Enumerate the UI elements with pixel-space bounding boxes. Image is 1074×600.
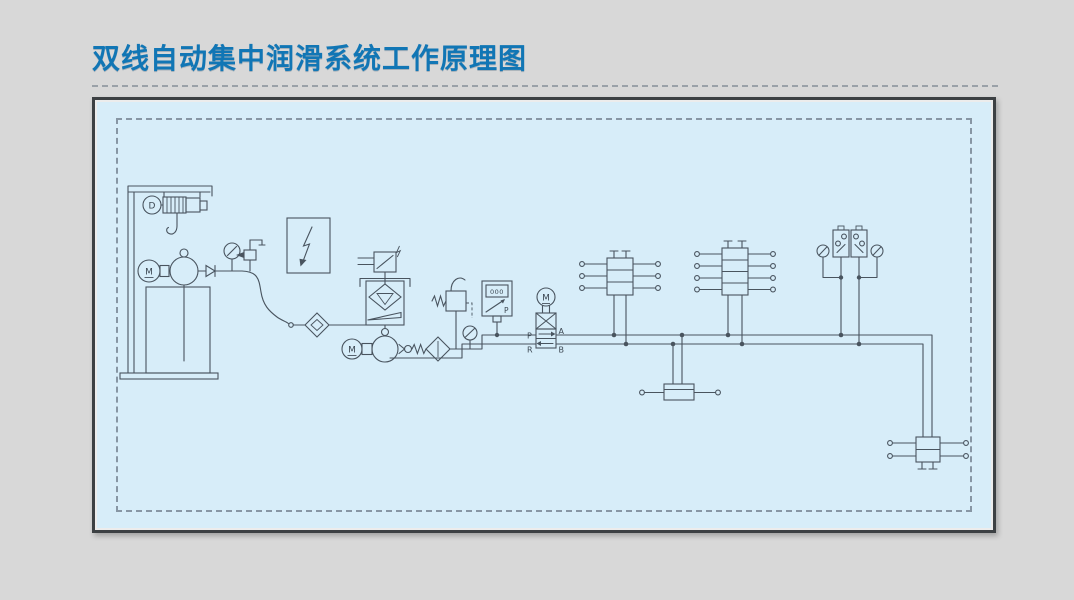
diagram-inner-dashed-border <box>116 118 972 512</box>
page-title: 双线自动集中润滑系统工作原理图 <box>92 44 527 75</box>
title-separator <box>92 85 998 87</box>
diagram-panel <box>92 97 996 533</box>
